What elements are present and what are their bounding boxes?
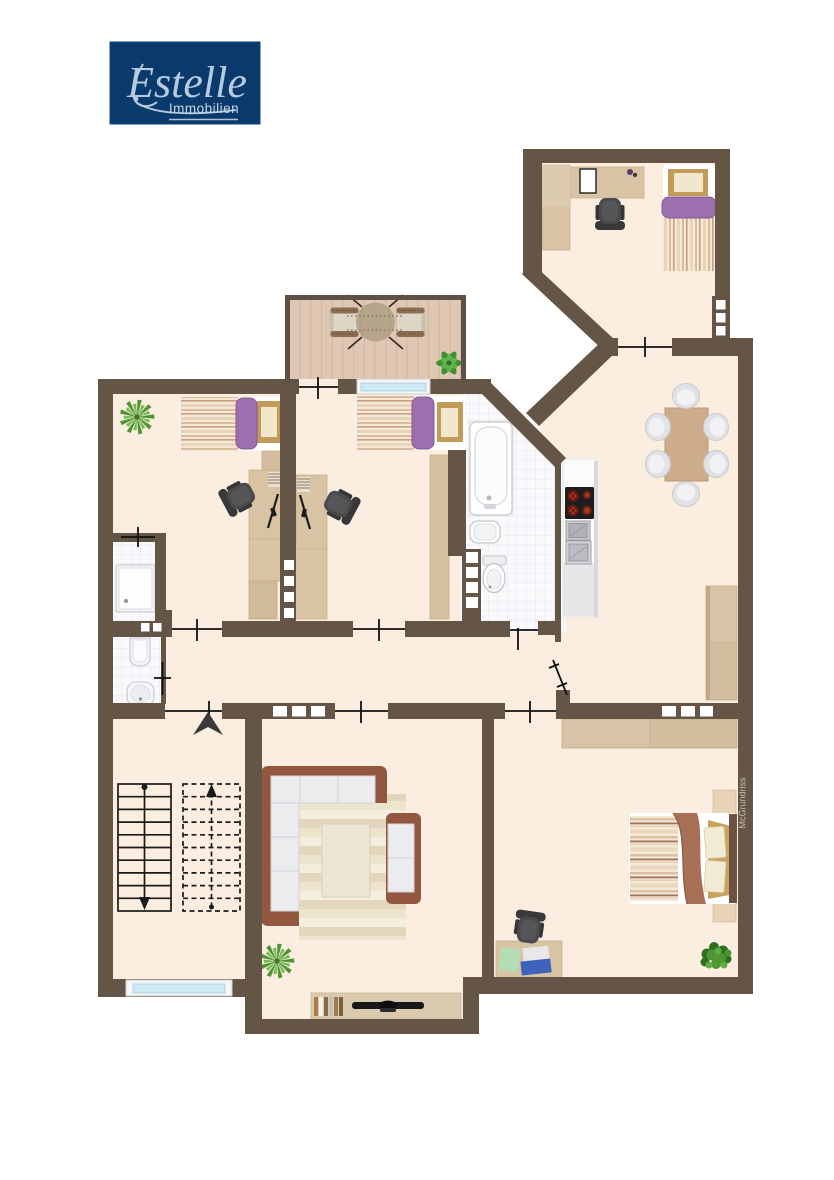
svg-text:Estelle: Estelle [126, 58, 247, 107]
svg-text:McGrundriss: McGrundriss [738, 777, 748, 829]
svg-text:Immobilien: Immobilien [169, 101, 239, 116]
